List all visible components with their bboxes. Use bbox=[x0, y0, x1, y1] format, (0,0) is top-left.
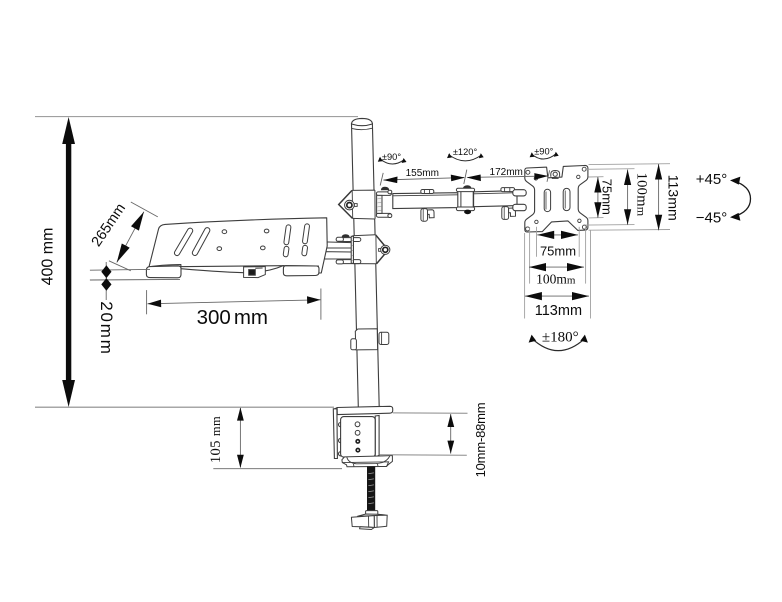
svg-text:±90°: ±90° bbox=[382, 152, 401, 162]
svg-text:+45°: +45° bbox=[696, 171, 727, 188]
svg-text:172mm: 172mm bbox=[490, 167, 523, 178]
svg-text:±120°: ±120° bbox=[453, 147, 478, 157]
svg-text:400 mm: 400 mm bbox=[40, 228, 57, 286]
svg-text:75mm: 75mm bbox=[600, 179, 615, 215]
svg-text:10mm-88mm: 10mm-88mm bbox=[473, 403, 488, 478]
svg-text:100mm: 100mm bbox=[634, 173, 650, 217]
svg-text:100mm: 100mm bbox=[536, 272, 576, 287]
svg-text:155mm: 155mm bbox=[406, 168, 439, 179]
svg-text:75mm: 75mm bbox=[540, 244, 576, 259]
svg-text:20mm: 20mm bbox=[97, 301, 116, 355]
svg-text:−45°: −45° bbox=[696, 209, 727, 226]
svg-text:113mm: 113mm bbox=[664, 175, 680, 221]
svg-text:105 mm: 105 mm bbox=[208, 416, 224, 463]
svg-text:±90°: ±90° bbox=[534, 147, 553, 157]
svg-text:±180°: ±180° bbox=[542, 329, 579, 345]
svg-text:113mm: 113mm bbox=[535, 303, 582, 319]
